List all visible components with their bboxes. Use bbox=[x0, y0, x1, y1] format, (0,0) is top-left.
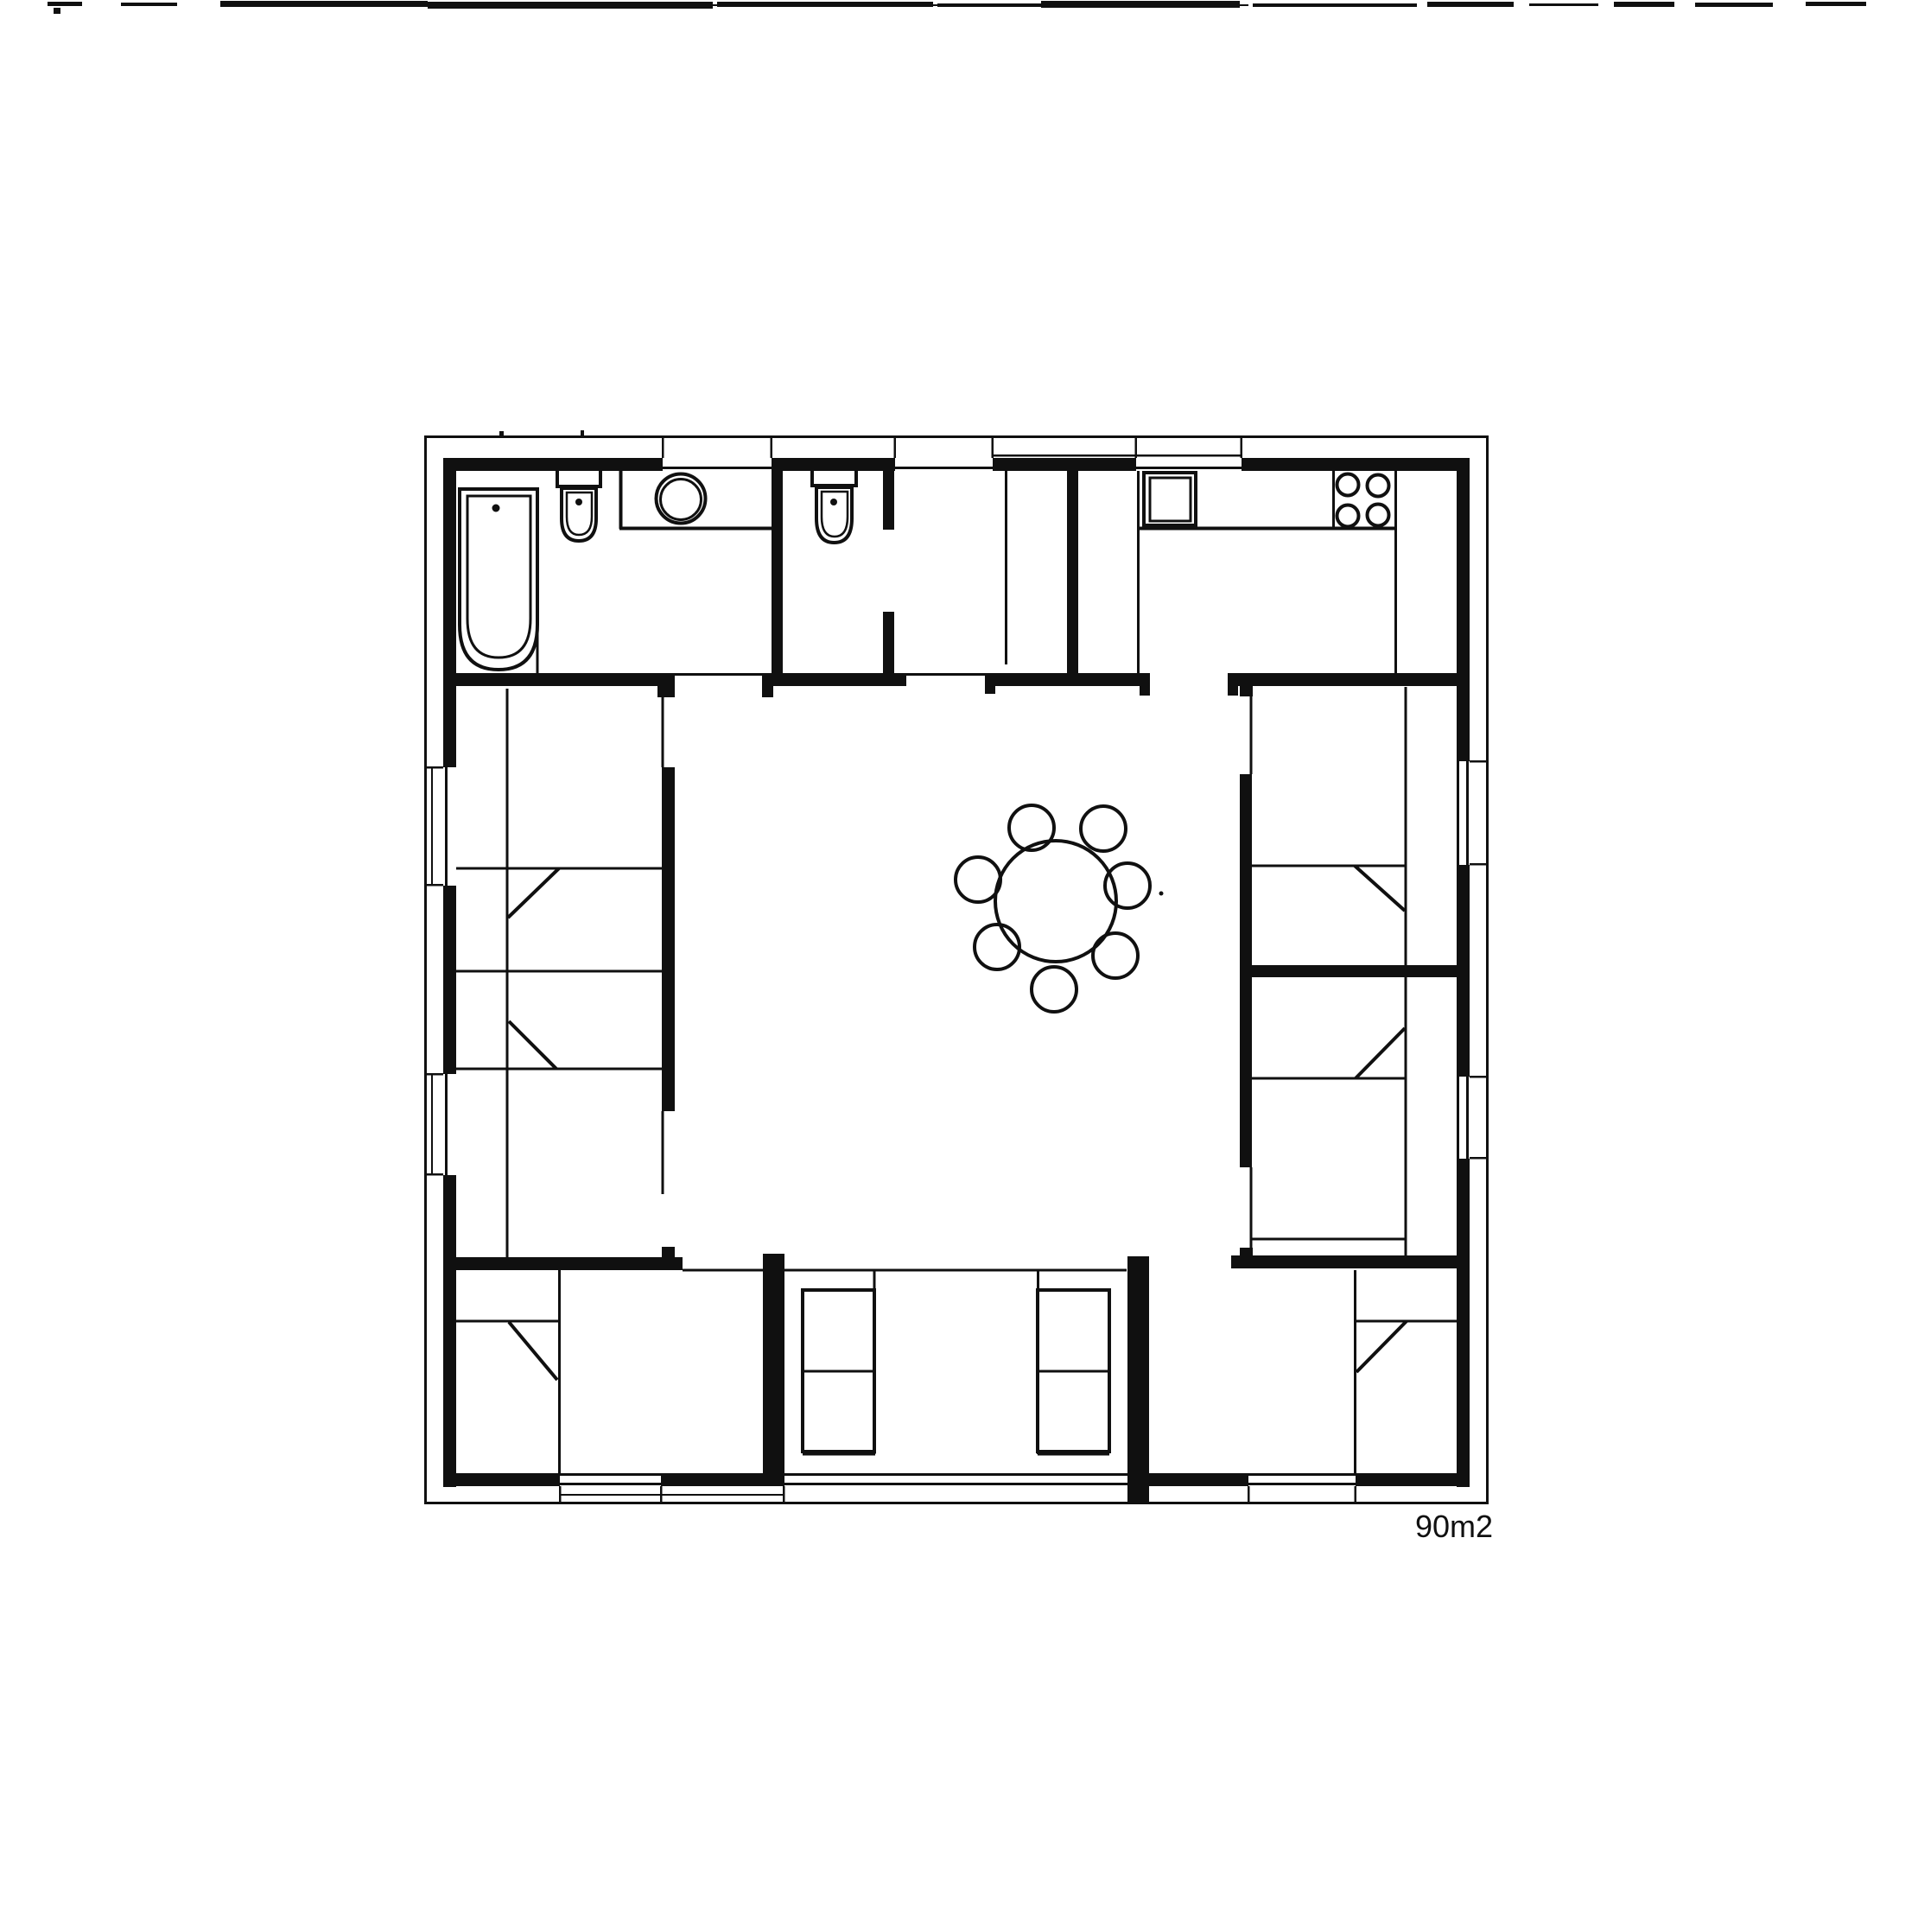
svg-text:90m2: 90m2 bbox=[1415, 1509, 1493, 1544]
